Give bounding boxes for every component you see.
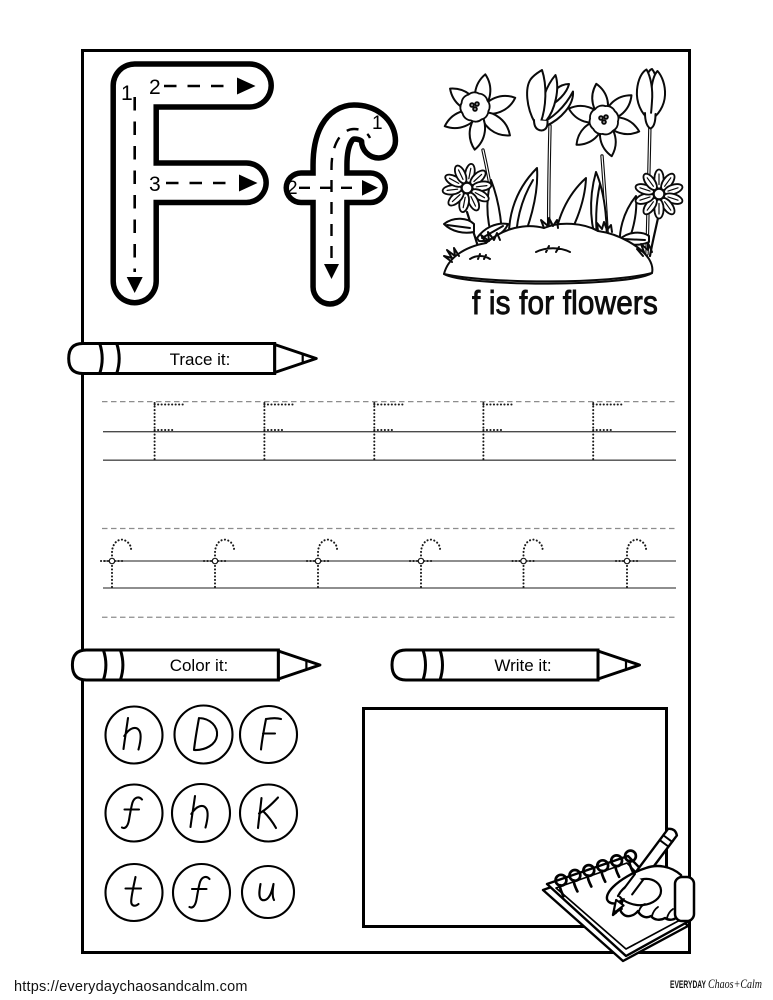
svg-text:Trace it:: Trace it:	[170, 350, 231, 369]
svg-text:https://everydaychaosandcalm.c: https://everydaychaosandcalm.com	[14, 979, 248, 995]
svg-text:EVERYDAY: EVERYDAY	[670, 979, 706, 991]
svg-text:Write it:: Write it:	[494, 656, 551, 675]
svg-text:f is for flowers: f is for flowers	[472, 285, 658, 322]
svg-text:1: 1	[121, 82, 133, 105]
svg-text:2: 2	[149, 76, 161, 99]
svg-text:3: 3	[149, 173, 161, 196]
svg-text:Color it:: Color it:	[170, 656, 229, 675]
svg-text:1: 1	[372, 113, 383, 134]
svg-text:2: 2	[287, 178, 298, 199]
svg-text:Chaos+Calm: Chaos+Calm	[708, 976, 762, 991]
